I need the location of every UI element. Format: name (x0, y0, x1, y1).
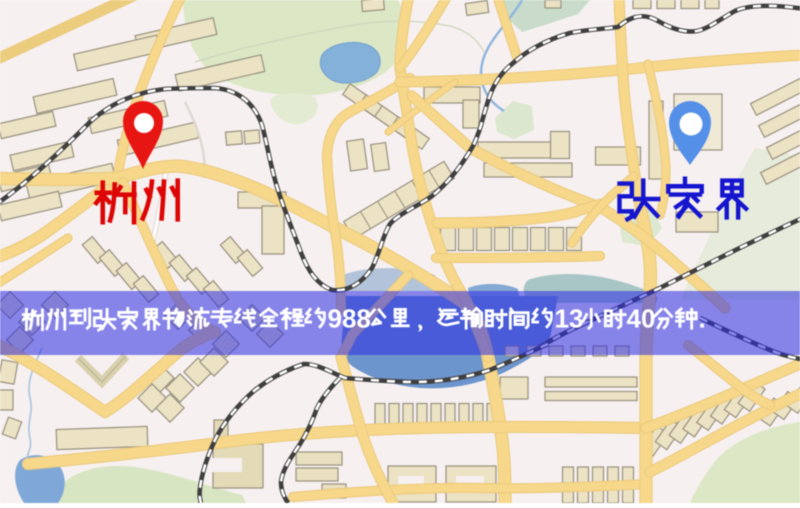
svg-text:988: 988 (328, 304, 371, 334)
svg-text:40: 40 (627, 304, 656, 334)
svg-text:13: 13 (555, 304, 584, 334)
svg-text:.: . (699, 304, 706, 334)
